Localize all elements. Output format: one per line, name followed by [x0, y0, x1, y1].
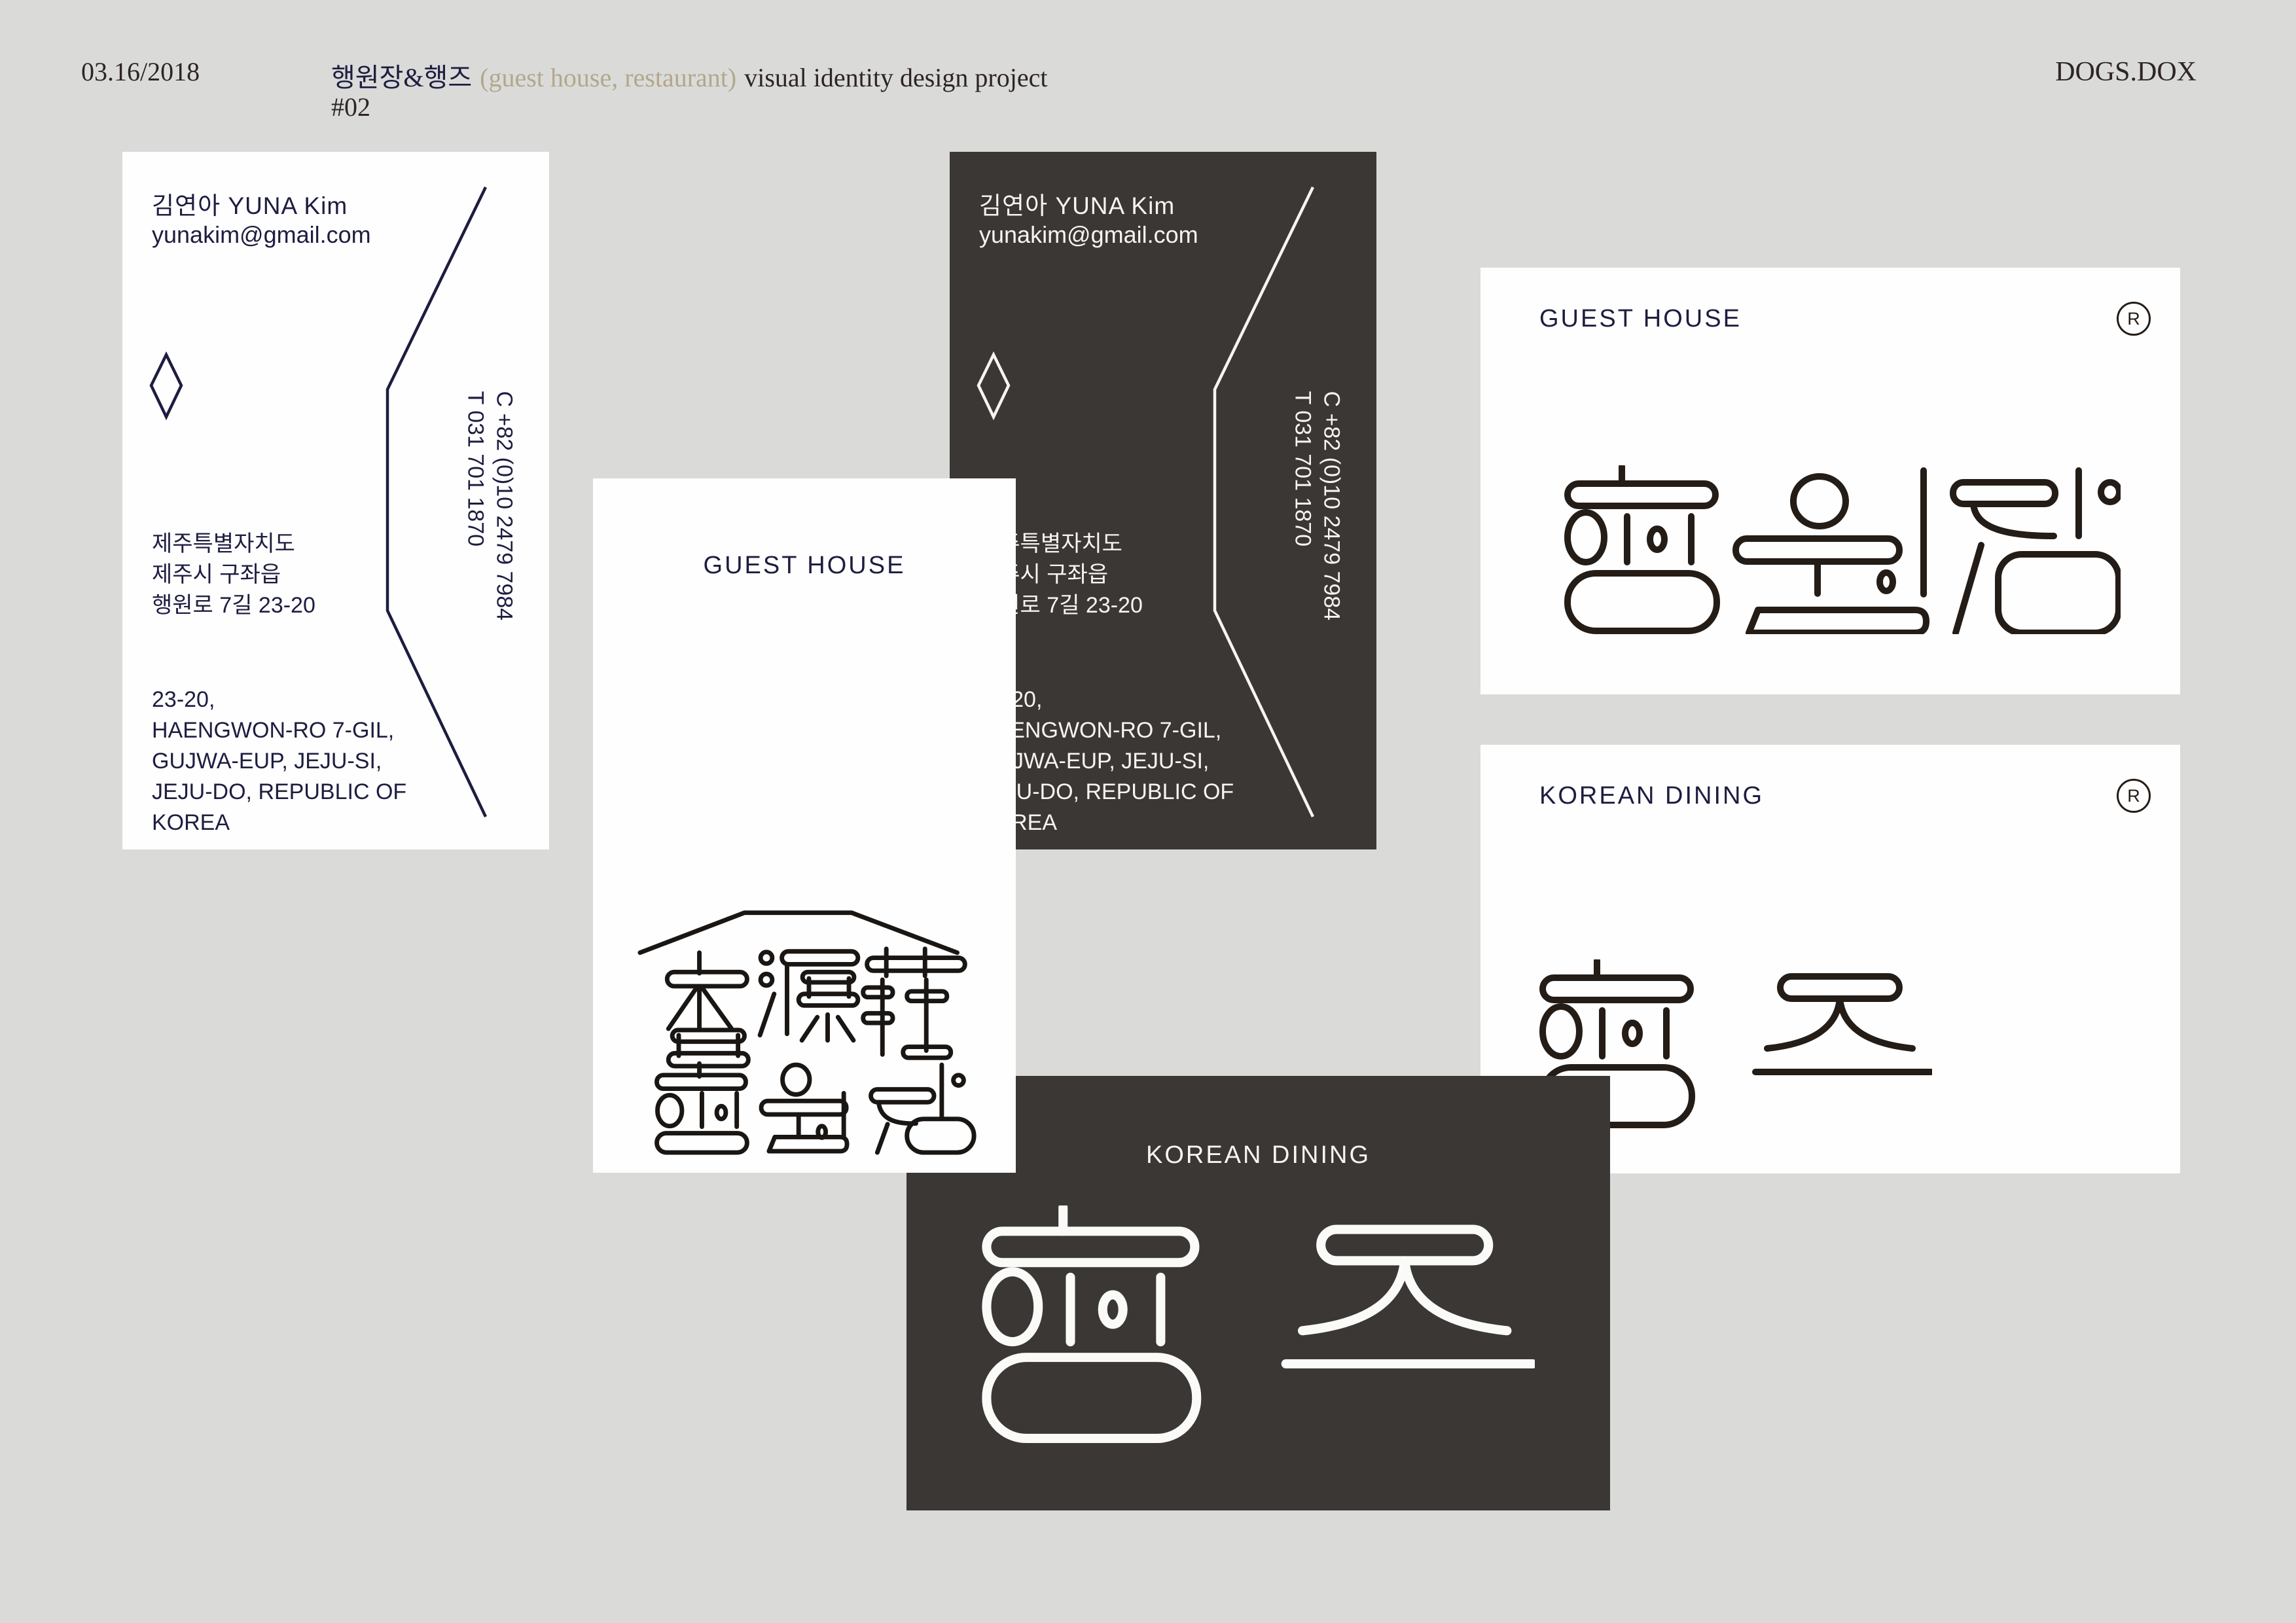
- project-name-description: visual identity design project: [744, 63, 1047, 92]
- address-english: 23-20, HAENGWON-RO 7-GIL, GUJWA-EUP, JEJ…: [152, 685, 406, 838]
- phone-mobile: C +82 (0)10 2479 7984: [490, 391, 519, 617]
- page-number: #02: [331, 92, 370, 122]
- haengjeu-logo-white: [982, 1205, 1535, 1443]
- logo-card-guest-house: GUEST HOUSE R: [1480, 268, 2180, 694]
- contact-email: yunakim@gmail.com: [152, 221, 371, 249]
- registered-trademark-icon: R: [2117, 302, 2151, 336]
- phone-numbers-vertical: C +82 (0)10 2479 7984 T 031 701 1870: [1289, 391, 1346, 617]
- haengwonjang-logo: [1564, 465, 2121, 634]
- logo-card-guest-house-portrait: GUEST HOUSE: [593, 478, 1016, 1173]
- address-en-line: KOREA: [152, 808, 406, 838]
- hanja-hangul-roof-logo: [627, 897, 988, 1155]
- address-kr-line: 행원로 7길 23-20: [152, 590, 315, 621]
- card-category-label: KOREAN DINING: [1539, 782, 1764, 810]
- address-korean: 제주특별자치도 제주시 구좌읍 행원로 7길 23-20: [152, 529, 315, 621]
- address-kr-line: 제주특별자치도: [152, 529, 315, 560]
- phone-numbers-vertical: C +82 (0)10 2479 7984 T 031 701 1870: [461, 391, 519, 617]
- project-name-korean: 행원장&행즈: [331, 63, 472, 92]
- contact-email: yunakim@gmail.com: [979, 221, 1198, 249]
- address-en-line: HAENGWON-RO 7-GIL,: [152, 715, 406, 746]
- address-en-line: JEJU-DO, REPUBLIC OF: [979, 777, 1234, 808]
- contact-name: 김연아 YUNA Kim: [152, 186, 348, 221]
- registered-trademark-icon: R: [2117, 779, 2151, 813]
- diamond-icon: [151, 355, 181, 417]
- address-kr-line: 제주시 구좌읍: [152, 560, 315, 590]
- phone-office: T 031 701 1870: [1289, 391, 1318, 617]
- address-en-line: GUJWA-EUP, JEJU-SI,: [152, 746, 406, 777]
- diamond-icon: [978, 355, 1009, 417]
- address-en-line: JEJU-DO, REPUBLIC OF: [152, 777, 406, 808]
- card-category-label: GUEST HOUSE: [593, 552, 1016, 580]
- header-date: 03.16/2018: [81, 56, 200, 87]
- business-card-contact-white: 김연아 YUNA Kim yunakim@gmail.com 제주특별자치도 제…: [122, 152, 549, 849]
- address-en-line: GUJWA-EUP, JEJU-SI,: [979, 746, 1234, 777]
- phone-office: T 031 701 1870: [461, 391, 490, 617]
- card-category-label: GUEST HOUSE: [1539, 305, 1742, 333]
- presentation-board: 03.16/2018 행원장&행즈(guest house, restauran…: [0, 0, 2296, 1623]
- address-en-line: 23-20,: [152, 685, 406, 715]
- address-english: 23-20, HAENGWON-RO 7-GIL, GUJWA-EUP, JEJ…: [979, 685, 1234, 838]
- studio-name: DOGS.DOX: [2055, 56, 2197, 88]
- address-en-line: 23-20,: [979, 685, 1234, 715]
- address-en-line: KOREA: [979, 808, 1234, 838]
- roof-line: [640, 913, 958, 953]
- phone-mobile: C +82 (0)10 2479 7984: [1318, 391, 1346, 617]
- project-name-subtitle: (guest house, restaurant): [480, 63, 736, 92]
- address-en-line: HAENGWON-RO 7-GIL,: [979, 715, 1234, 746]
- header-project-title: 행원장&행즈(guest house, restaurant)visual id…: [331, 56, 1047, 94]
- contact-name: 김연아 YUNA Kim: [979, 186, 1175, 221]
